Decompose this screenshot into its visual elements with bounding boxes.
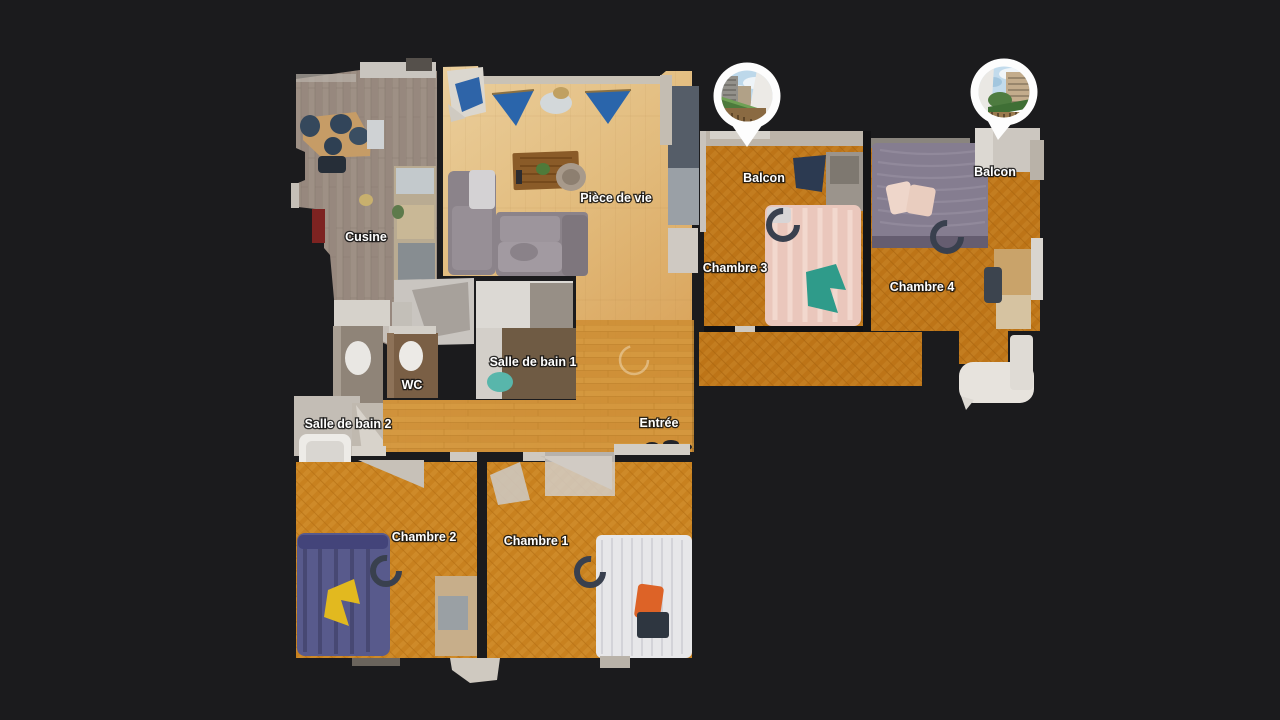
svg-text:WC: WC bbox=[402, 378, 423, 392]
svg-text:Entrée: Entrée bbox=[640, 416, 679, 430]
svg-text:Salle de bain 1: Salle de bain 1 bbox=[490, 355, 577, 369]
svg-text:Balcon: Balcon bbox=[974, 165, 1016, 179]
svg-text:Chambre 3: Chambre 3 bbox=[703, 261, 768, 275]
svg-text:Balcon: Balcon bbox=[743, 171, 785, 185]
svg-text:Cusine: Cusine bbox=[345, 230, 387, 244]
svg-text:Chambre 2: Chambre 2 bbox=[392, 530, 457, 544]
svg-text:Chambre 1: Chambre 1 bbox=[504, 534, 569, 548]
svg-text:Chambre 4: Chambre 4 bbox=[890, 280, 955, 294]
svg-text:Pièce de vie: Pièce de vie bbox=[580, 191, 652, 205]
svg-text:Salle de bain 2: Salle de bain 2 bbox=[305, 417, 392, 431]
